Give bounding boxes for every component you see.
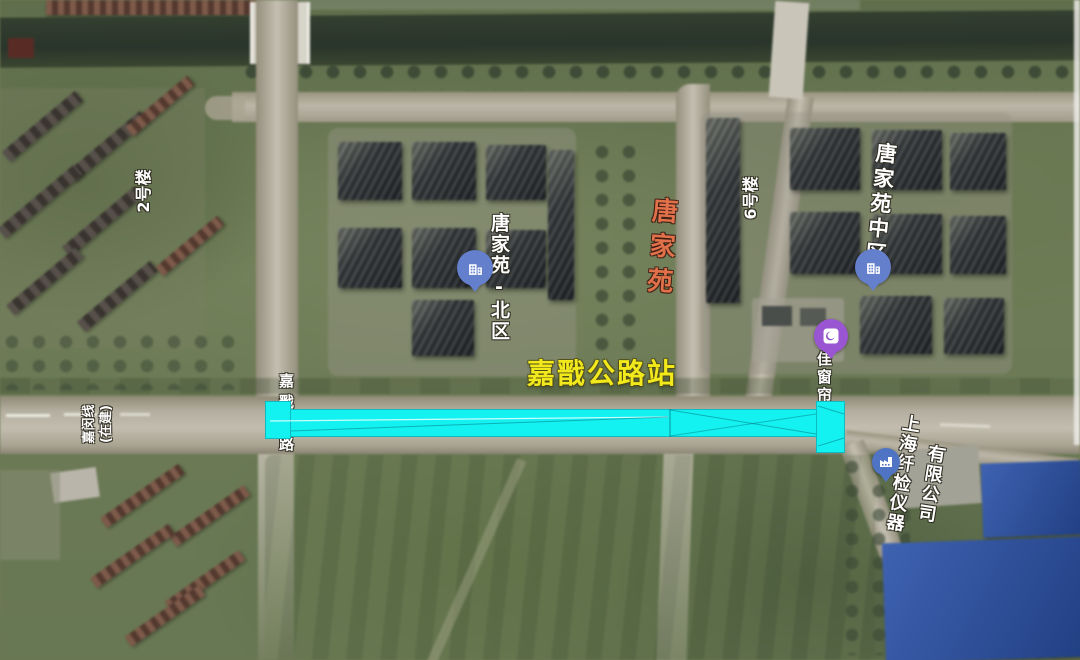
factory-icon bbox=[879, 455, 893, 469]
building-roof bbox=[412, 300, 474, 356]
poi-pin-tangjiayuan-north[interactable] bbox=[457, 250, 493, 286]
compound-block bbox=[762, 306, 792, 326]
jiamin-line-name: 嘉闵线 bbox=[82, 404, 99, 443]
label-building-2: 2号楼 bbox=[130, 169, 154, 212]
vertical-road-west bbox=[256, 0, 298, 402]
field bbox=[265, 455, 875, 660]
lane-dash bbox=[120, 413, 150, 416]
building-roof bbox=[950, 216, 1006, 274]
building-roof bbox=[790, 128, 860, 190]
tree-line bbox=[240, 60, 1080, 90]
station-name-label: 嘉戬公路站 bbox=[527, 352, 677, 392]
label-jiamin-line: 嘉闵线 (在建) bbox=[82, 404, 116, 443]
storefront-icon bbox=[823, 328, 839, 344]
label-jiajian-road: 嘉戬公路 bbox=[276, 373, 297, 457]
poi-pin-curtain-shop[interactable] bbox=[814, 319, 848, 353]
label-building-6: 6号楼 bbox=[737, 176, 761, 219]
label-tangjiayuan: 唐家苑 bbox=[638, 196, 682, 303]
building-roof bbox=[486, 145, 546, 200]
image-edge bbox=[1074, 0, 1080, 445]
red-hut bbox=[8, 38, 34, 58]
building-roof bbox=[338, 142, 402, 200]
lane-dash bbox=[6, 414, 50, 417]
building-roof bbox=[412, 142, 476, 200]
building-icon bbox=[865, 259, 882, 276]
bridge-east bbox=[769, 1, 810, 99]
trees bbox=[590, 140, 640, 360]
building-roof bbox=[338, 228, 402, 288]
factory-blue-building bbox=[981, 460, 1080, 537]
factory-blue-building bbox=[882, 537, 1080, 660]
gray-patch bbox=[0, 470, 60, 560]
building-roof bbox=[860, 296, 932, 354]
poi-pin-company[interactable] bbox=[872, 448, 900, 476]
top-buildings bbox=[46, 0, 261, 15]
building-icon bbox=[467, 260, 484, 277]
satellite-basemap bbox=[0, 0, 1080, 660]
building-roof bbox=[548, 150, 574, 300]
building-roof bbox=[944, 298, 1004, 354]
poi-pin-tangjiayuan-mid[interactable] bbox=[855, 249, 891, 285]
jiamin-line-status: (在建) bbox=[99, 404, 116, 443]
building-roof bbox=[790, 212, 860, 274]
top-road-end bbox=[205, 96, 245, 120]
building-roof bbox=[706, 118, 740, 303]
building-roof bbox=[950, 133, 1006, 190]
trees bbox=[0, 330, 240, 390]
satellite-map-view: 嘉戬公路 佳窗帘 2号楼 6号楼 唐家苑-北区 唐家苑 唐家苑中区 嘉闵线 (在… bbox=[0, 0, 1080, 660]
